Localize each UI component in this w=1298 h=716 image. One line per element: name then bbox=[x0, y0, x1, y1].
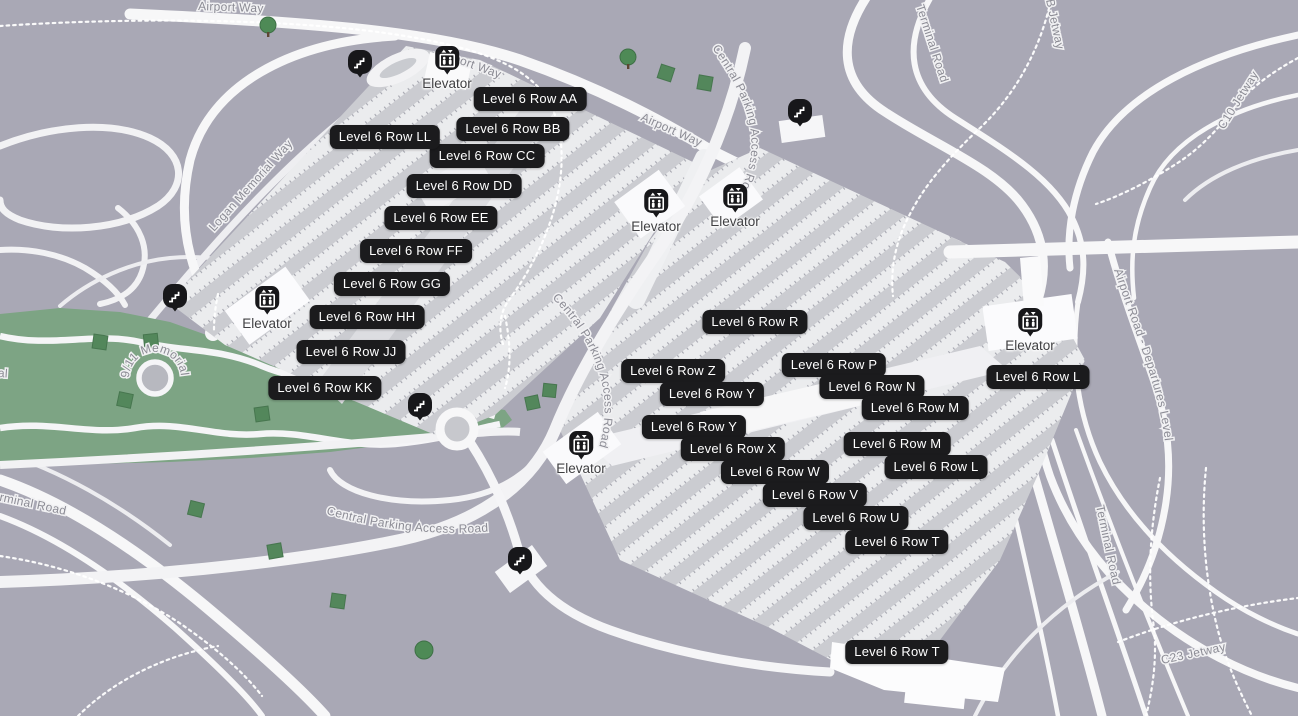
escalator-icon[interactable] bbox=[507, 546, 533, 576]
row-label-l-east[interactable]: Level 6 Row L bbox=[987, 365, 1090, 389]
row-label-ee[interactable]: Level 6 Row EE bbox=[384, 206, 497, 230]
row-label-u[interactable]: Level 6 Row U bbox=[803, 506, 908, 530]
elevator-poi-label: Elevator bbox=[422, 76, 472, 91]
escalator-poi[interactable] bbox=[347, 49, 373, 79]
elevator-poi[interactable]: Elevator bbox=[422, 45, 472, 91]
elevator-poi[interactable]: Elevator bbox=[242, 285, 292, 331]
elevator-poi[interactable]: Elevator bbox=[631, 188, 681, 234]
row-label-bb[interactable]: Level 6 Row BB bbox=[456, 117, 569, 141]
row-label-m2[interactable]: Level 6 Row M bbox=[844, 432, 951, 456]
row-label-cc[interactable]: Level 6 Row CC bbox=[430, 144, 545, 168]
row-label-m[interactable]: Level 6 Row M bbox=[862, 396, 969, 420]
elevator-poi-label: Elevator bbox=[242, 316, 292, 331]
escalator-poi[interactable] bbox=[507, 546, 533, 576]
elevator-icon[interactable] bbox=[434, 45, 460, 75]
escalator-icon[interactable] bbox=[407, 392, 433, 422]
row-label-y[interactable]: Level 6 Row Y bbox=[660, 382, 764, 406]
row-label-r[interactable]: Level 6 Row R bbox=[702, 310, 807, 334]
row-label-t[interactable]: Level 6 Row T bbox=[845, 530, 948, 554]
elevator-poi[interactable]: Elevator bbox=[1005, 307, 1055, 353]
elevator-poi-label: Elevator bbox=[556, 461, 606, 476]
elevator-icon[interactable] bbox=[568, 430, 594, 460]
row-label-w[interactable]: Level 6 Row W bbox=[721, 460, 829, 484]
row-label-aa[interactable]: Level 6 Row AA bbox=[474, 87, 587, 111]
elevator-icon[interactable] bbox=[254, 285, 280, 315]
row-label-kk[interactable]: Level 6 Row KK bbox=[268, 376, 381, 400]
elevator-icon[interactable] bbox=[1017, 307, 1043, 337]
escalator-icon[interactable] bbox=[162, 283, 188, 313]
escalator-poi[interactable] bbox=[407, 392, 433, 422]
row-label-p[interactable]: Level 6 Row P bbox=[782, 353, 886, 377]
row-label-z[interactable]: Level 6 Row Z bbox=[621, 359, 725, 383]
row-label-ff[interactable]: Level 6 Row FF bbox=[360, 239, 472, 263]
elevator-icon[interactable] bbox=[643, 188, 669, 218]
row-label-dd[interactable]: Level 6 Row DD bbox=[407, 174, 522, 198]
row-label-hh[interactable]: Level 6 Row HH bbox=[310, 305, 425, 329]
row-label-t-south[interactable]: Level 6 Row T bbox=[845, 640, 948, 664]
poi-overlay: Level 6 Row AA Level 6 Row BB Level 6 Ro… bbox=[0, 0, 1298, 716]
elevator-poi[interactable]: Elevator bbox=[710, 183, 760, 229]
escalator-poi[interactable] bbox=[787, 98, 813, 128]
row-label-v[interactable]: Level 6 Row V bbox=[763, 483, 867, 507]
row-label-l[interactable]: Level 6 Row L bbox=[885, 455, 988, 479]
elevator-poi-label: Elevator bbox=[710, 214, 760, 229]
elevator-poi-label: Elevator bbox=[1005, 338, 1055, 353]
escalator-icon[interactable] bbox=[347, 49, 373, 79]
elevator-poi[interactable]: Elevator bbox=[556, 430, 606, 476]
escalator-poi[interactable] bbox=[162, 283, 188, 313]
elevator-icon[interactable] bbox=[722, 183, 748, 213]
escalator-icon[interactable] bbox=[787, 98, 813, 128]
row-label-gg[interactable]: Level 6 Row GG bbox=[334, 272, 450, 296]
row-label-y2[interactable]: Level 6 Row Y bbox=[642, 415, 746, 439]
elevator-poi-label: Elevator bbox=[631, 219, 681, 234]
row-label-x[interactable]: Level 6 Row X bbox=[681, 437, 785, 461]
row-label-ll[interactable]: Level 6 Row LL bbox=[330, 125, 440, 149]
row-label-jj[interactable]: Level 6 Row JJ bbox=[297, 340, 406, 364]
